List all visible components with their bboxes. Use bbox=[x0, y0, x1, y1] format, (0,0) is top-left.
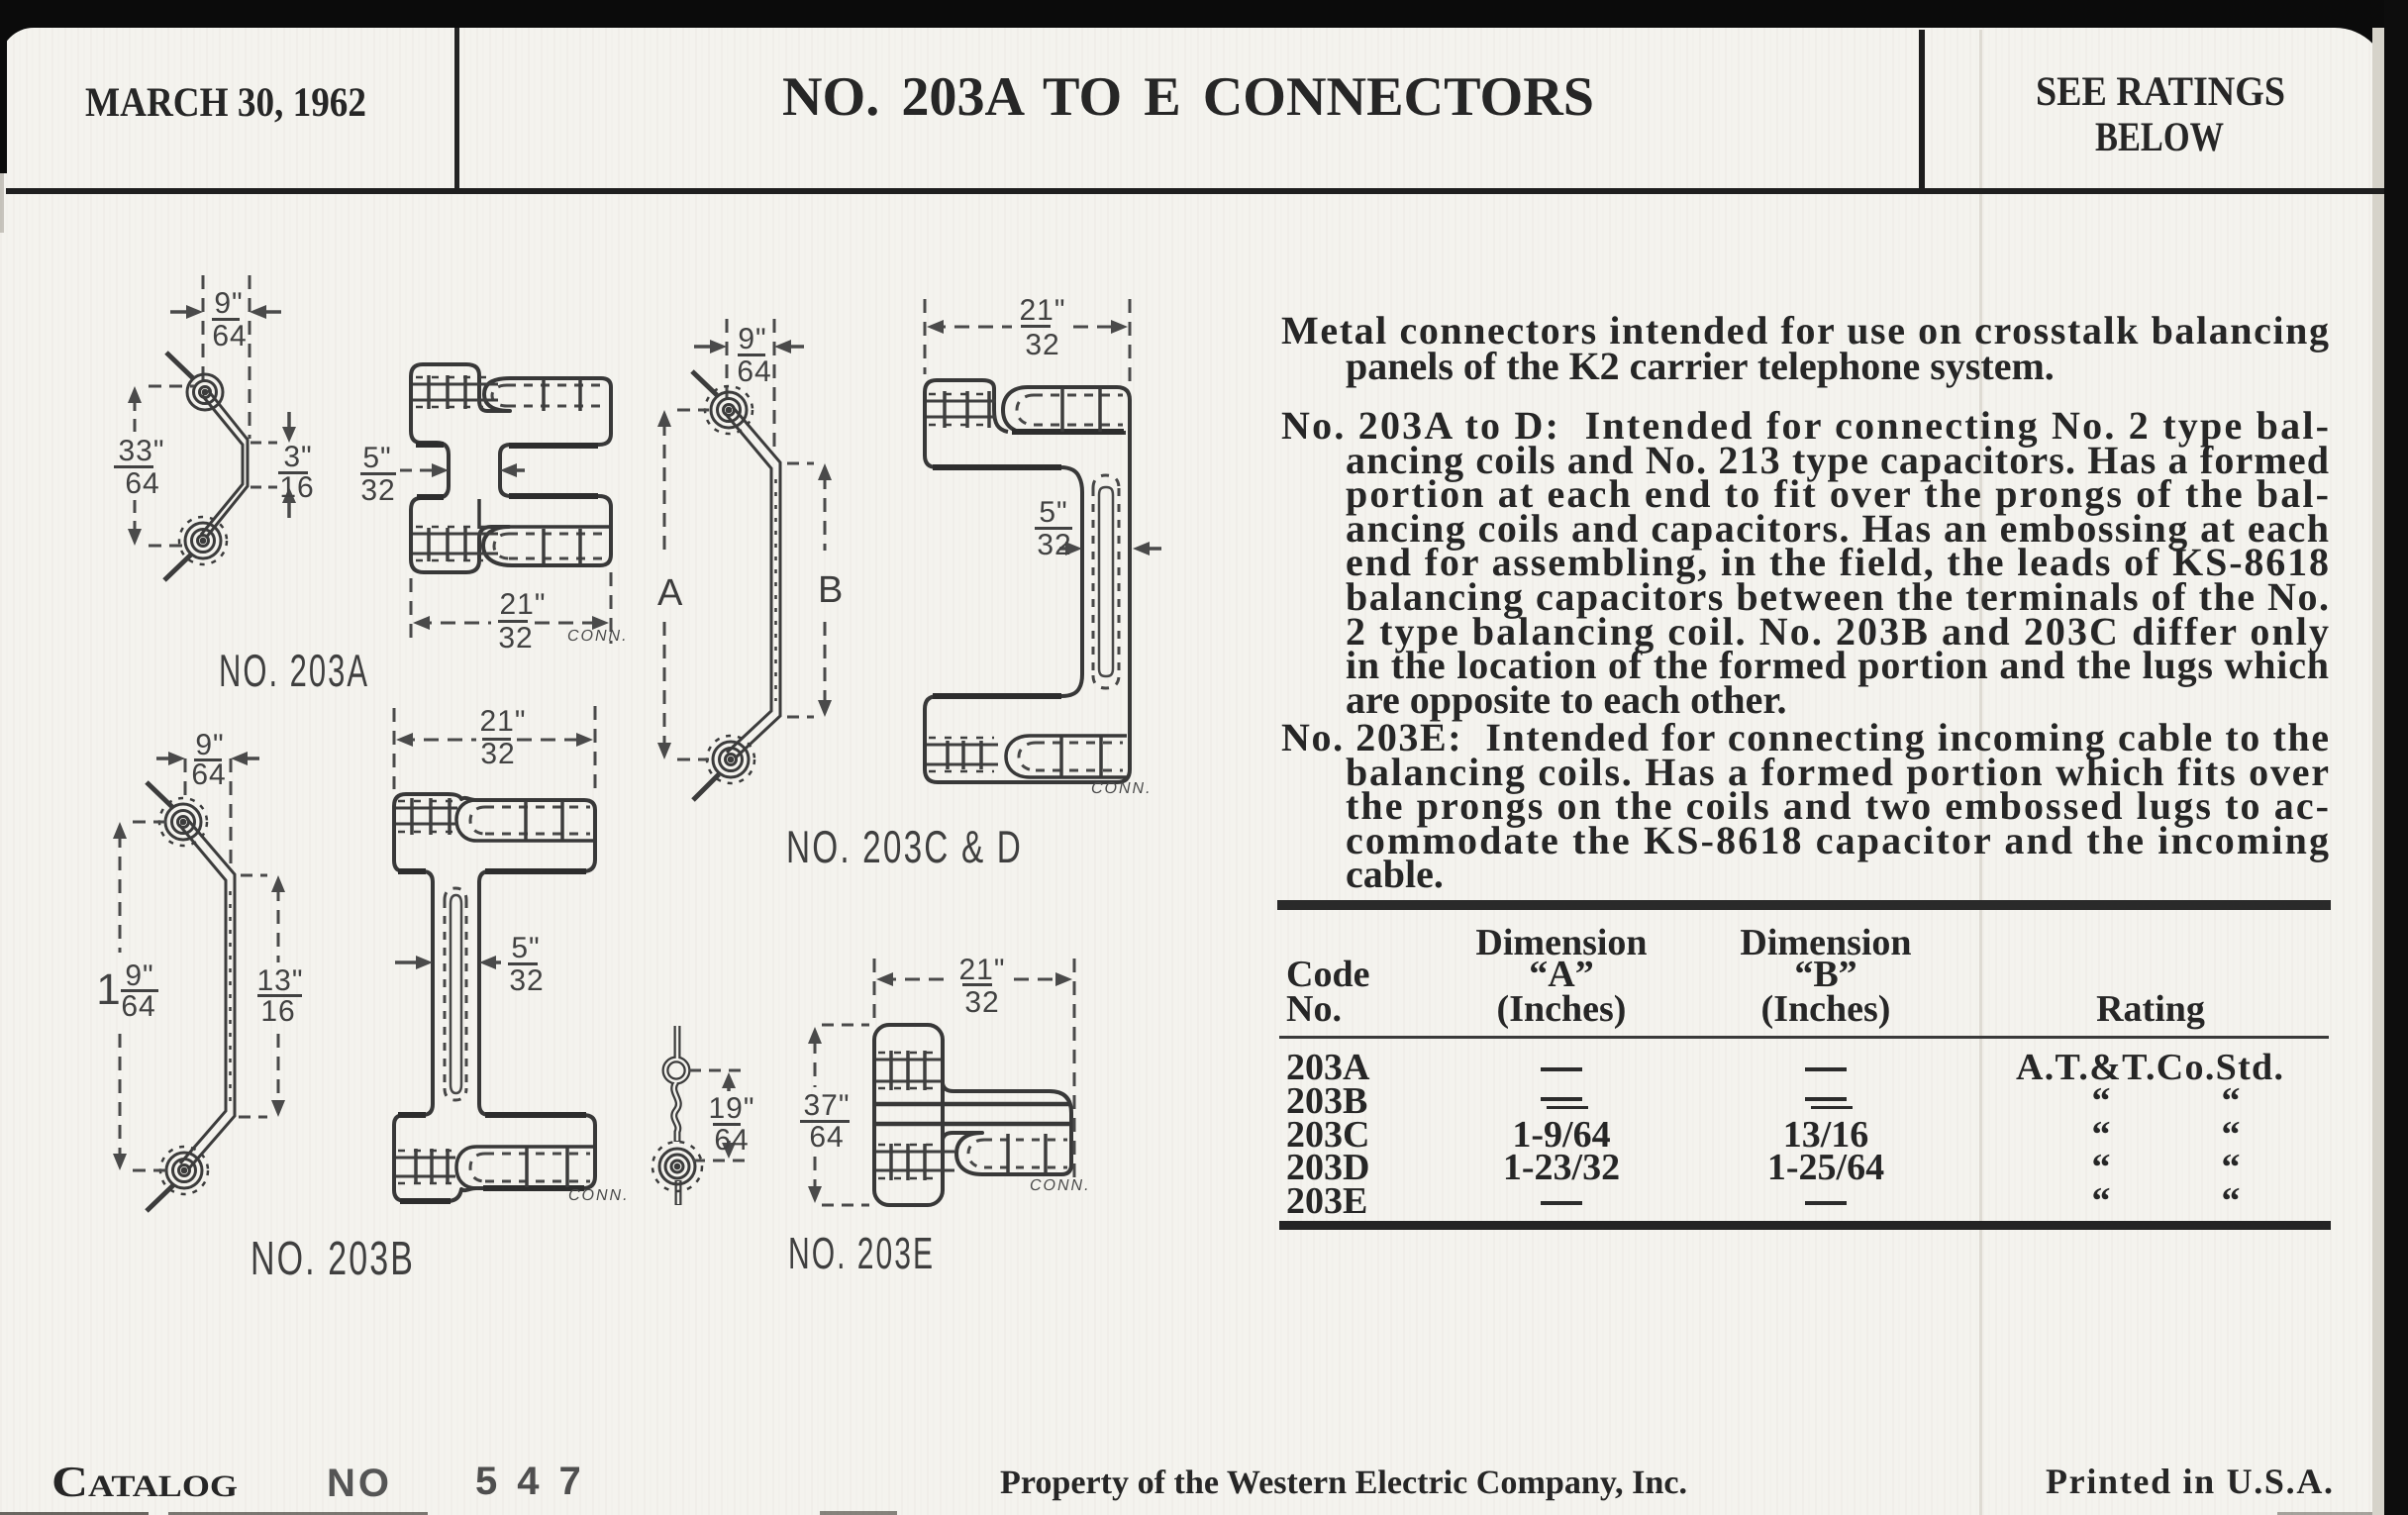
svg-text:(Inches): (Inches) bbox=[1497, 988, 1627, 1030]
svg-text:9": 9" bbox=[738, 323, 766, 355]
svg-text:Property of the Western Electr: Property of the Western Electric Company… bbox=[1000, 1464, 1687, 1501]
svg-text:9": 9" bbox=[195, 729, 224, 761]
svg-text:“: “ bbox=[2092, 1180, 2111, 1222]
svg-text:MARCH 30, 1962: MARCH 30, 1962 bbox=[85, 80, 366, 126]
svg-text:21": 21" bbox=[1019, 294, 1065, 327]
svg-text:203E: 203E bbox=[1286, 1180, 1367, 1222]
svg-text:64: 64 bbox=[714, 1124, 749, 1157]
svg-text:37": 37" bbox=[803, 1089, 850, 1122]
svg-text:21": 21" bbox=[479, 705, 526, 738]
svg-text:Catalog: Catalog bbox=[51, 1458, 238, 1506]
svg-text:B: B bbox=[818, 569, 843, 611]
svg-text:19": 19" bbox=[708, 1092, 754, 1125]
svg-text:33": 33" bbox=[118, 435, 164, 467]
svg-text:NO. 203C & D: NO. 203C & D bbox=[786, 821, 1023, 872]
svg-text:64: 64 bbox=[809, 1121, 844, 1154]
svg-text:CONN.: CONN. bbox=[1030, 1177, 1091, 1194]
svg-text:“: “ bbox=[2222, 1180, 2241, 1222]
svg-text:9": 9" bbox=[125, 959, 153, 992]
svg-text:panels of the K2 carrier telep: panels of the K2 carrier telephone syste… bbox=[1346, 344, 2055, 388]
svg-text:A.T.&T.Co.Std.: A.T.&T.Co.Std. bbox=[2016, 1047, 2283, 1088]
svg-text:NO: NO bbox=[327, 1462, 392, 1505]
svg-text:5": 5" bbox=[511, 932, 540, 964]
svg-text:3": 3" bbox=[283, 441, 312, 473]
svg-text:CONN.: CONN. bbox=[1091, 780, 1153, 797]
svg-text:cable.: cable. bbox=[1346, 852, 1444, 896]
svg-text:SEE RATINGS: SEE RATINGS bbox=[2036, 69, 2285, 115]
svg-text:21": 21" bbox=[499, 588, 546, 621]
svg-text:64: 64 bbox=[191, 758, 226, 791]
svg-text:NO. 203A: NO. 203A bbox=[219, 645, 369, 696]
svg-text:1-23/32: 1-23/32 bbox=[1503, 1147, 1620, 1188]
svg-text:32: 32 bbox=[360, 474, 395, 507]
svg-text:BELOW: BELOW bbox=[2095, 115, 2224, 160]
svg-text:32: 32 bbox=[1025, 329, 1059, 361]
svg-text:32: 32 bbox=[964, 986, 999, 1019]
svg-text:64: 64 bbox=[212, 320, 247, 353]
svg-text:5": 5" bbox=[362, 442, 391, 474]
svg-text:64: 64 bbox=[737, 355, 771, 388]
svg-text:CONN.: CONN. bbox=[567, 628, 629, 645]
svg-text:32: 32 bbox=[1037, 529, 1071, 561]
svg-text:commodate the KS-8618 capacito: commodate the KS-8618 capacitor and the … bbox=[1346, 818, 2329, 862]
svg-text:Printed in U.S.A.: Printed in U.S.A. bbox=[2046, 1462, 2333, 1501]
svg-text:21": 21" bbox=[958, 954, 1005, 986]
svg-text:64: 64 bbox=[121, 990, 155, 1023]
svg-text:16: 16 bbox=[260, 995, 295, 1028]
svg-text:CONN.: CONN. bbox=[568, 1187, 630, 1204]
svg-text:16: 16 bbox=[279, 471, 314, 504]
svg-text:13": 13" bbox=[256, 964, 303, 997]
svg-text:547: 547 bbox=[475, 1460, 601, 1503]
svg-text:32: 32 bbox=[509, 964, 544, 997]
svg-text:Rating: Rating bbox=[2096, 988, 2205, 1030]
svg-text:32: 32 bbox=[480, 738, 515, 770]
svg-text:NO. 203A TO E CONNECTORS: NO. 203A TO E CONNECTORS bbox=[782, 66, 1594, 128]
svg-text:1-25/64: 1-25/64 bbox=[1767, 1147, 1884, 1188]
svg-text:9": 9" bbox=[214, 287, 243, 320]
svg-text:(Inches): (Inches) bbox=[1761, 988, 1891, 1030]
svg-text:1: 1 bbox=[96, 965, 121, 1014]
svg-text:A: A bbox=[657, 572, 683, 614]
svg-text:32: 32 bbox=[498, 622, 533, 655]
svg-text:5": 5" bbox=[1039, 496, 1067, 529]
svg-text:NO. 203E: NO. 203E bbox=[788, 1228, 935, 1278]
svg-text:64: 64 bbox=[125, 467, 159, 500]
svg-text:NO. 203B: NO. 203B bbox=[251, 1233, 415, 1285]
svg-text:No.: No. bbox=[1286, 988, 1342, 1030]
